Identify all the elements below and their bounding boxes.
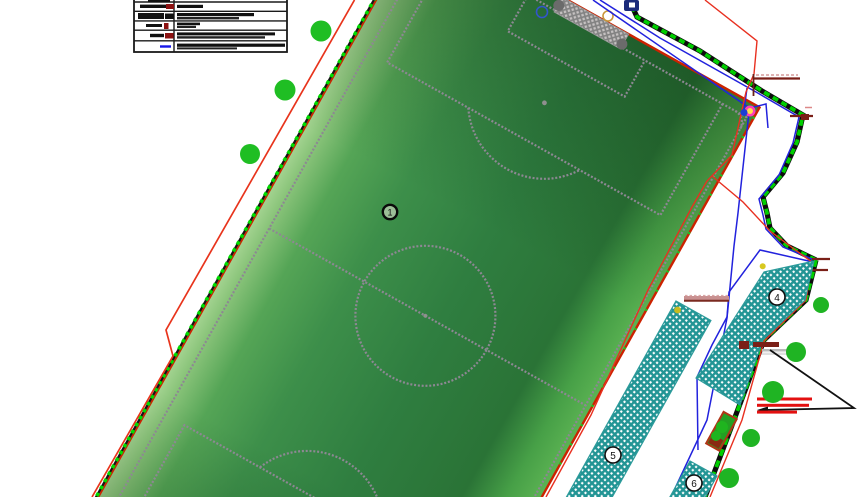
- svg-text:5: 5: [610, 451, 616, 462]
- svg-text:1: 1: [387, 208, 392, 218]
- svg-text:4: 4: [774, 293, 780, 304]
- svg-text:6: 6: [691, 479, 697, 490]
